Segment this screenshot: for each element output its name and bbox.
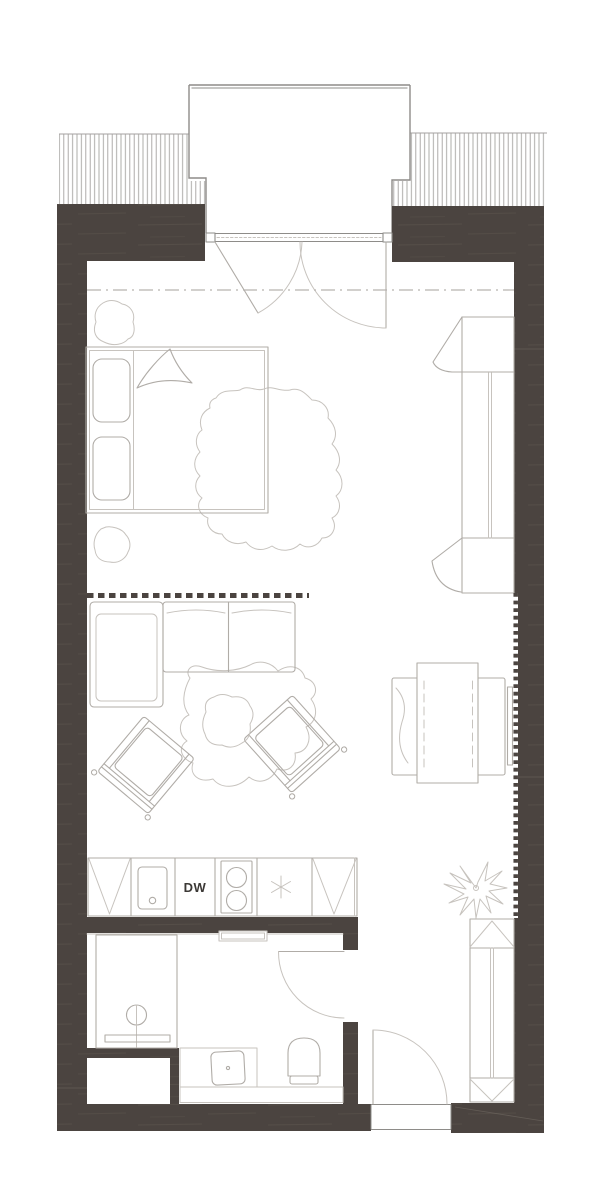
- wall-niche-right: [170, 1048, 179, 1106]
- living-area: [90, 602, 348, 821]
- radiator: [508, 687, 513, 765]
- wall-bathroom-right-lower: [343, 1022, 358, 1104]
- coffee-table: [203, 695, 253, 748]
- vanity-counter: [180, 1048, 257, 1087]
- balcony-deck-hatch-right: [410, 133, 547, 206]
- entry-threshold: [371, 1105, 451, 1130]
- cabinet-v-symbol-left: [89, 859, 130, 914]
- bed-mattress: [90, 351, 265, 510]
- dining-table: [417, 663, 478, 783]
- entry-door-swing: [373, 1030, 447, 1104]
- bathroom-lower-band: [180, 1087, 343, 1103]
- wall-bathroom-right-upper: [343, 933, 358, 950]
- freezer-snowflake-icon: [272, 876, 291, 898]
- door-frame-right: [383, 233, 392, 242]
- right-wall-dash-strip: [514, 593, 519, 918]
- toilet: [288, 1038, 320, 1084]
- sofa-chaise-cushion: [96, 614, 157, 701]
- balcony-structure-outline: [189, 85, 410, 233]
- wall-bottom-right: [451, 1103, 544, 1133]
- dining-area: [392, 663, 513, 783]
- potted-plant: [444, 862, 507, 918]
- kitchen-counter: [88, 858, 357, 916]
- wall-bottom-left: [57, 1104, 371, 1131]
- chair-throw-blanket: [396, 688, 408, 763]
- pillow-bottom: [93, 437, 130, 500]
- toilet-base: [290, 1076, 318, 1084]
- pillow-top: [93, 359, 130, 422]
- door-swing-right: [300, 242, 386, 328]
- sofa-chaise: [90, 602, 163, 707]
- wardrobe-open-door-bottom: [432, 538, 462, 592]
- shaft-niche: [87, 1058, 170, 1104]
- washbasin-shelf: [105, 1035, 170, 1042]
- cabinet-v-symbol-right: [313, 859, 356, 914]
- sink-basin-drain: [226, 1066, 229, 1069]
- bed-area: [86, 301, 342, 563]
- kitchen-sink: [138, 867, 167, 909]
- blanket-fold: [137, 349, 192, 388]
- hall-closet: [470, 919, 514, 1102]
- wall-right: [514, 206, 544, 1133]
- sink-drain: [149, 897, 155, 903]
- bathroom-door-swing: [278, 952, 344, 1019]
- floor-plan-drawing: DW: [0, 0, 600, 1200]
- door-leaf-left: [215, 242, 258, 313]
- burner-bottom: [227, 891, 247, 911]
- kitchen: DW: [88, 858, 357, 916]
- decor-stone-top: [94, 301, 134, 345]
- burner-top: [227, 868, 247, 888]
- armchair-right: [240, 692, 348, 800]
- sofa: [90, 602, 295, 707]
- entry: [371, 862, 514, 1130]
- wardrobe-open-door-top: [433, 317, 462, 372]
- wardrobe-rail: [489, 373, 492, 538]
- wall-niche-top: [86, 1048, 170, 1058]
- armchair-left: [90, 713, 197, 821]
- bed-frame: [86, 347, 268, 513]
- door-swing-left: [258, 242, 302, 313]
- cooktop: [221, 861, 252, 913]
- floor-plan: DW: [0, 0, 600, 1200]
- balcony-french-doors: [206, 233, 392, 328]
- door-frame-left: [206, 233, 215, 242]
- closet-shelf-lines: [470, 948, 514, 1078]
- wardrobe-shelf-lines: [452, 372, 514, 538]
- balcony-deck-hatch-left: [59, 134, 189, 204]
- balcony-deck-hatch-left-step: [189, 181, 206, 204]
- wall-left: [57, 204, 87, 1131]
- balcony-deck-hatch-right-step: [392, 181, 410, 206]
- sink-basin: [211, 1051, 246, 1086]
- closet-rail: [491, 948, 494, 1078]
- decor-stone-bottom: [94, 527, 130, 563]
- wall-shelf-niche: [219, 931, 267, 941]
- wardrobe: [432, 317, 514, 593]
- dishwasher-label: DW: [184, 880, 207, 895]
- living-rug: [180, 662, 315, 786]
